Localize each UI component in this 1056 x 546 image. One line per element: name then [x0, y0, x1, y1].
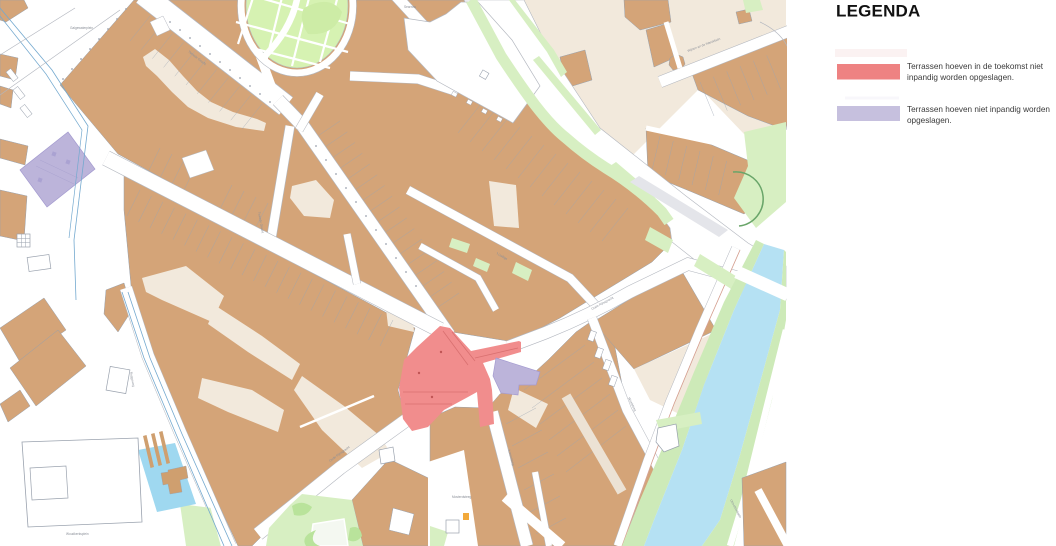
- svg-text:Galgewaterplein: Galgewaterplein: [70, 26, 93, 30]
- svg-text:Searrow: Searrow: [404, 5, 417, 9]
- svg-text:opgeslagen.: opgeslagen.: [907, 116, 952, 125]
- svg-text:Terrassen hoeven niet inpandig: Terrassen hoeven niet inpandig worden: [907, 105, 1050, 114]
- svg-text:Mosterdsteeg: Mosterdsteeg: [452, 495, 472, 499]
- svg-text:Woudkerksplein: Woudkerksplein: [66, 532, 89, 536]
- svg-text:Terrassen hoeven in de toekoms: Terrassen hoeven in de toekomst niet: [907, 62, 1044, 71]
- svg-text:LEGENDA: LEGENDA: [836, 2, 921, 21]
- svg-text:inpandig worden opgeslagen.: inpandig worden opgeslagen.: [907, 73, 1014, 82]
